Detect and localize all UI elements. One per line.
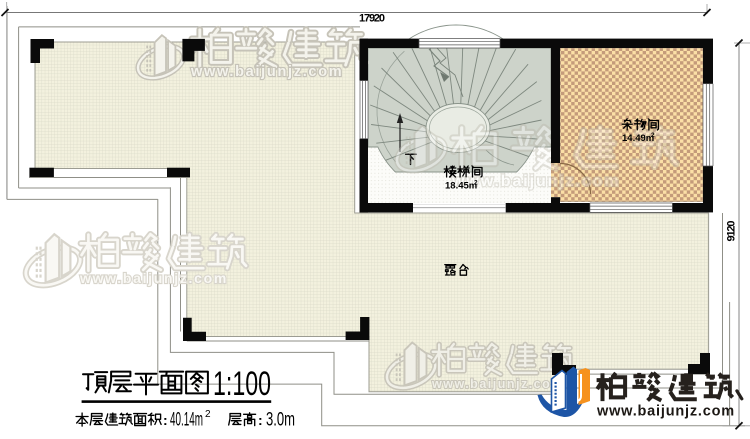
svg-text:18.45m: 18.45m xyxy=(445,181,477,192)
svg-text:3.0m: 3.0m xyxy=(266,410,295,431)
svg-text:9120: 9120 xyxy=(726,221,738,242)
svg-text::: : xyxy=(258,412,263,428)
svg-text:17920: 17920 xyxy=(359,13,385,25)
svg-text::: : xyxy=(163,412,168,428)
svg-text:40.14m: 40.14m xyxy=(170,410,203,431)
svg-text:2: 2 xyxy=(651,132,655,139)
svg-text:1:100: 1:100 xyxy=(213,365,271,403)
svg-text:www.baijunjz.com: www.baijunjz.com xyxy=(79,270,228,286)
svg-text:14.49m: 14.49m xyxy=(622,133,654,144)
svg-text:www.baijunjz.com: www.baijunjz.com xyxy=(596,404,735,420)
svg-text:www.baijunjz.com: www.baijunjz.com xyxy=(190,64,343,80)
svg-text:2: 2 xyxy=(474,180,478,187)
svg-text:www.baijunjz.com: www.baijunjz.com xyxy=(431,377,564,391)
svg-text:2: 2 xyxy=(205,409,211,420)
